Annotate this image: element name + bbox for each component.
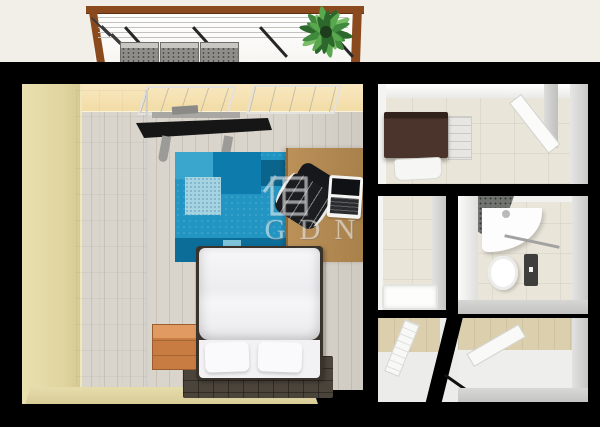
wc-room <box>458 196 588 314</box>
entry-hall <box>378 84 588 184</box>
duvet <box>199 248 320 340</box>
bathroom <box>378 196 446 310</box>
hall-chair <box>393 157 442 181</box>
window <box>246 85 341 114</box>
wc-bottom-wall <box>458 300 588 314</box>
potted-plant <box>282 0 366 66</box>
toilet-tank <box>524 254 538 286</box>
toilet <box>488 256 518 290</box>
laptop <box>327 175 363 219</box>
hall-right-wall <box>570 84 588 184</box>
sink-counter <box>482 208 542 252</box>
pillow <box>204 341 249 373</box>
bedroom <box>22 84 363 404</box>
shelf-unit <box>448 116 472 160</box>
bedside-crate <box>152 324 200 370</box>
wc-right-wall <box>572 196 588 314</box>
hallway <box>378 318 588 402</box>
floor-plan-render: GDN <box>0 0 600 427</box>
rug-patch <box>261 160 285 186</box>
balcony <box>86 6 364 64</box>
hallway-bottom-wall <box>458 388 588 402</box>
rug-patch <box>175 152 213 179</box>
bathtub <box>382 284 438 310</box>
wardrobe <box>76 90 148 386</box>
wc-left-wall <box>458 196 478 314</box>
rug-patch <box>185 177 221 215</box>
hall-cabinet <box>384 112 448 158</box>
bedroom-left-wall <box>22 84 82 404</box>
faucet-icon <box>502 210 510 218</box>
laptop-screen <box>331 178 360 196</box>
pillow <box>257 341 302 373</box>
laptop-keyboard <box>330 197 359 215</box>
